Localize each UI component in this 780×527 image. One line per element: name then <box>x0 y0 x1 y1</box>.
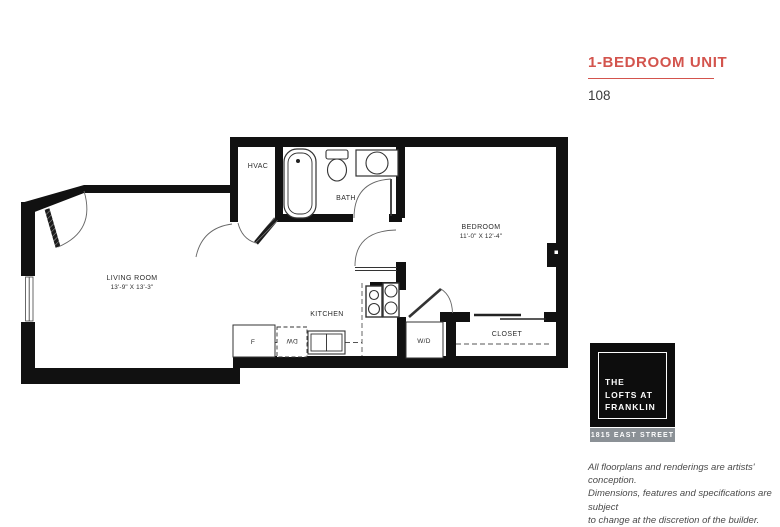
bedroom-label: BEDROOM <box>462 224 501 231</box>
kitchen-sink <box>308 331 345 354</box>
logo-line2: LOFTS AT <box>605 389 656 402</box>
closet-sliding-door <box>474 315 546 319</box>
disclaimer-line2: Dimensions, features and specifications … <box>588 487 780 513</box>
bathtub <box>284 149 316 218</box>
logo-line1: THE <box>605 376 656 389</box>
bath-label: BATH <box>336 195 356 202</box>
dishwasher-label: DW <box>286 337 298 344</box>
toilet <box>326 150 348 181</box>
disclaimer-line3: to change at the discretion of the build… <box>588 514 780 527</box>
bath-door <box>354 179 391 218</box>
right-wall-detail <box>555 251 559 255</box>
unit-number: 108 <box>588 88 768 103</box>
address-bar: 1815 EAST STREET <box>590 428 675 442</box>
page-title: 1-BEDROOM UNIT <box>588 54 714 79</box>
fridge-label: F <box>251 339 255 346</box>
kitchen-label: KITCHEN <box>310 311 344 318</box>
property-logo: THE LOFTS AT FRANKLIN 1815 EAST STREET <box>590 343 675 442</box>
logo-text: THE LOFTS AT FRANKLIN <box>605 374 661 416</box>
washer-dryer-label: W/D <box>417 338 431 345</box>
bedroom-dims: 11'-0" X 12'-4" <box>460 233 502 240</box>
logo-line3: FRANKLIN <box>605 401 656 414</box>
floorplan-page: LIVING ROOM 13'-9" X 13'-3" BEDROOM 11'-… <box>0 0 780 517</box>
closet-label: CLOSET <box>492 331 523 338</box>
bedroom-door <box>355 230 397 271</box>
hvac-door <box>238 219 276 243</box>
living-room-label: LIVING ROOM <box>106 275 157 282</box>
hvac-label: HVAC <box>248 163 269 170</box>
logo-square: THE LOFTS AT FRANKLIN <box>590 343 675 427</box>
stove <box>366 283 399 317</box>
bathroom-sink <box>356 150 398 176</box>
disclaimer: All floorplans and renderings are artist… <box>588 461 780 527</box>
plan-info: 1-BEDROOM UNIT 108 <box>588 54 768 103</box>
disclaimer-line1: All floorplans and renderings are artist… <box>588 461 780 487</box>
left-window <box>26 277 34 321</box>
hall-door-arc <box>196 224 232 257</box>
living-room-dims: 13'-9" X 13'-3" <box>111 284 154 291</box>
